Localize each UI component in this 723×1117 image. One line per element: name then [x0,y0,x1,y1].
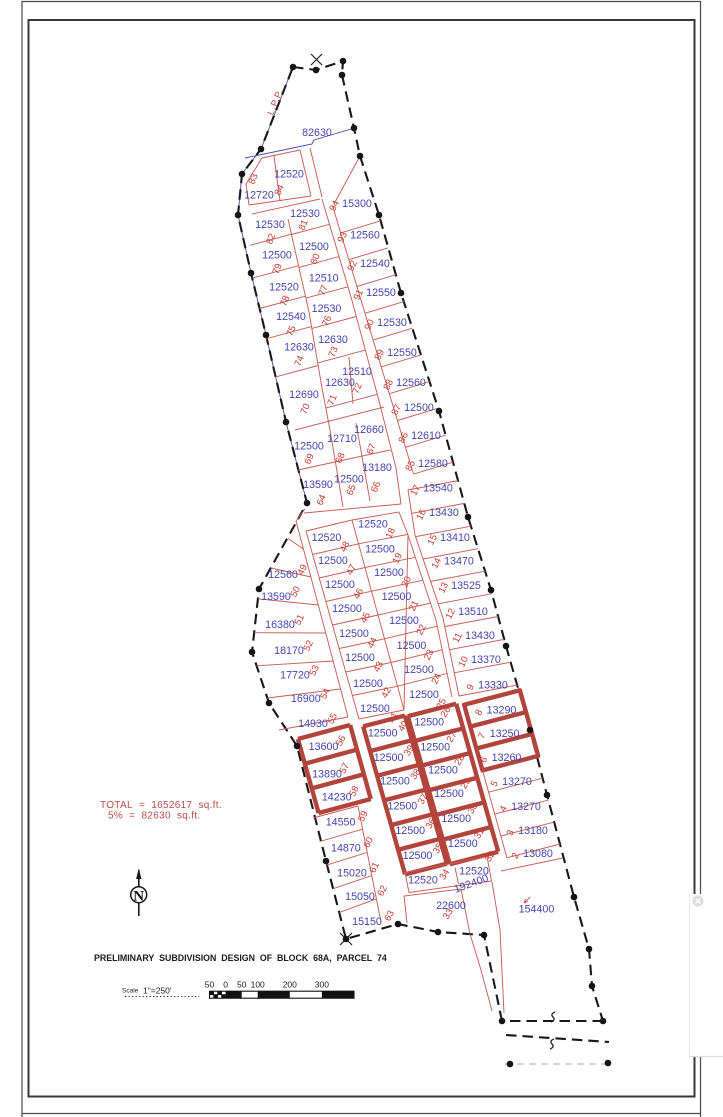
svg-text:12520: 12520 [312,532,342,544]
svg-text:12690: 12690 [289,389,319,401]
svg-text:50: 50 [237,980,247,990]
svg-text:12500: 12500 [365,543,395,555]
svg-text:12500: 12500 [360,703,390,715]
svg-text:12500: 12500 [368,728,398,740]
svg-text:15020: 15020 [337,868,367,880]
svg-text:12500: 12500 [448,838,478,850]
svg-text:12500: 12500 [414,716,444,728]
svg-text:13510: 13510 [458,606,488,618]
svg-text:14870: 14870 [331,843,361,855]
svg-text:13260: 13260 [492,752,522,764]
svg-text:17720: 17720 [280,670,310,682]
svg-text:13590: 13590 [261,591,291,603]
svg-text:200: 200 [283,980,297,990]
svg-text:13410: 13410 [440,532,470,544]
svg-text:82630: 82630 [302,127,332,139]
svg-text:13180: 13180 [518,825,548,837]
svg-text:12520: 12520 [408,874,438,886]
svg-text:12500: 12500 [382,591,412,603]
svg-text:12500: 12500 [339,628,369,640]
svg-text:12630: 12630 [318,334,348,346]
svg-text:13180: 13180 [362,462,392,474]
svg-text:12550: 12550 [366,287,396,299]
svg-text:Scale: Scale [122,988,139,995]
svg-text:13270: 13270 [511,801,541,813]
svg-text:12500: 12500 [380,776,410,788]
svg-text:12560: 12560 [396,377,426,389]
svg-text:PRELIMINARY SUBDIVISION DESI: PRELIMINARY SUBDIVISION DESIGN OF BLOCK … [94,953,387,963]
svg-text:12710: 12710 [327,433,357,445]
svg-text:12630: 12630 [325,377,355,389]
svg-text:13430: 13430 [429,507,459,519]
svg-text:12500: 12500 [389,615,419,627]
svg-text:TOTAL = 1652617 sq.ft.: TOTAL = 1652617 sq.ft. [100,800,222,811]
svg-text:15150: 15150 [352,916,382,928]
svg-text:13370: 13370 [471,654,501,666]
svg-text:13250: 13250 [490,728,520,740]
svg-text:1"=250': 1"=250' [143,986,172,996]
svg-text:5% = 82630 sq.ft.: 5% = 82630 sq.ft. [108,811,200,822]
svg-text:12500: 12500 [262,249,292,261]
svg-text:12500: 12500 [332,603,362,615]
svg-text:12540: 12540 [360,258,390,270]
svg-text:12500: 12500 [388,801,418,813]
svg-text:12500: 12500 [409,689,439,701]
svg-text:12630: 12630 [284,341,314,353]
svg-text:12540: 12540 [276,311,306,323]
svg-text:13080: 13080 [523,848,553,860]
svg-text:18170: 18170 [274,645,304,657]
svg-text:50: 50 [205,980,215,990]
svg-text:12500: 12500 [404,402,434,414]
svg-text:12500: 12500 [420,741,450,753]
svg-text:13540: 13540 [423,482,453,494]
svg-text:12500: 12500 [374,567,404,579]
svg-text:12500: 12500 [299,241,329,253]
svg-text:12510: 12510 [309,272,339,284]
svg-text:13430: 13430 [465,630,495,642]
svg-text:12500: 12500 [428,764,458,776]
svg-text:12560: 12560 [268,569,298,581]
svg-text:12500: 12500 [441,813,471,825]
svg-text:13470: 13470 [444,555,474,567]
svg-text:12530: 12530 [312,303,342,315]
svg-text:12520: 12520 [274,168,304,180]
svg-text:12520: 12520 [269,281,299,293]
svg-text:300: 300 [315,980,329,990]
svg-text:12500: 12500 [403,850,433,862]
svg-text:12560: 12560 [350,229,380,241]
svg-text:13330: 13330 [478,679,508,691]
svg-text:13290: 13290 [487,705,517,717]
svg-text:16900: 16900 [291,693,321,705]
svg-text:14930: 14930 [298,718,328,730]
svg-text:15050: 15050 [345,891,375,903]
svg-text:12500: 12500 [374,752,404,764]
svg-text:12500: 12500 [434,788,464,800]
svg-text:14550: 14550 [326,816,356,828]
svg-text:13270: 13270 [502,776,532,788]
svg-text:100: 100 [251,980,265,990]
svg-text:12530: 12530 [290,208,320,220]
svg-text:12510: 12510 [342,366,372,378]
svg-text:12500: 12500 [318,555,348,567]
svg-text:12500: 12500 [397,640,427,652]
svg-text:12500: 12500 [294,440,324,452]
svg-text:12520: 12520 [358,518,388,530]
svg-text:12500: 12500 [325,579,355,591]
svg-text:12500: 12500 [404,664,434,676]
svg-text:N: N [133,888,144,904]
svg-text:12660: 12660 [354,424,384,436]
svg-text:13590: 13590 [303,479,333,491]
svg-text:12550: 12550 [387,347,417,359]
svg-text:12500: 12500 [353,678,383,690]
svg-text:12530: 12530 [377,317,407,329]
svg-text:12500: 12500 [395,825,425,837]
svg-text:12720: 12720 [244,189,274,201]
svg-text:13525: 13525 [451,580,481,592]
svg-text:16380: 16380 [265,619,295,631]
svg-text:12530: 12530 [255,219,285,231]
svg-text:154400: 154400 [519,903,555,915]
svg-text:15300: 15300 [342,198,372,210]
svg-text:12610: 12610 [411,430,441,442]
svg-text:12580: 12580 [418,458,448,470]
svg-text:12500: 12500 [345,652,375,664]
svg-text:0: 0 [223,980,228,990]
